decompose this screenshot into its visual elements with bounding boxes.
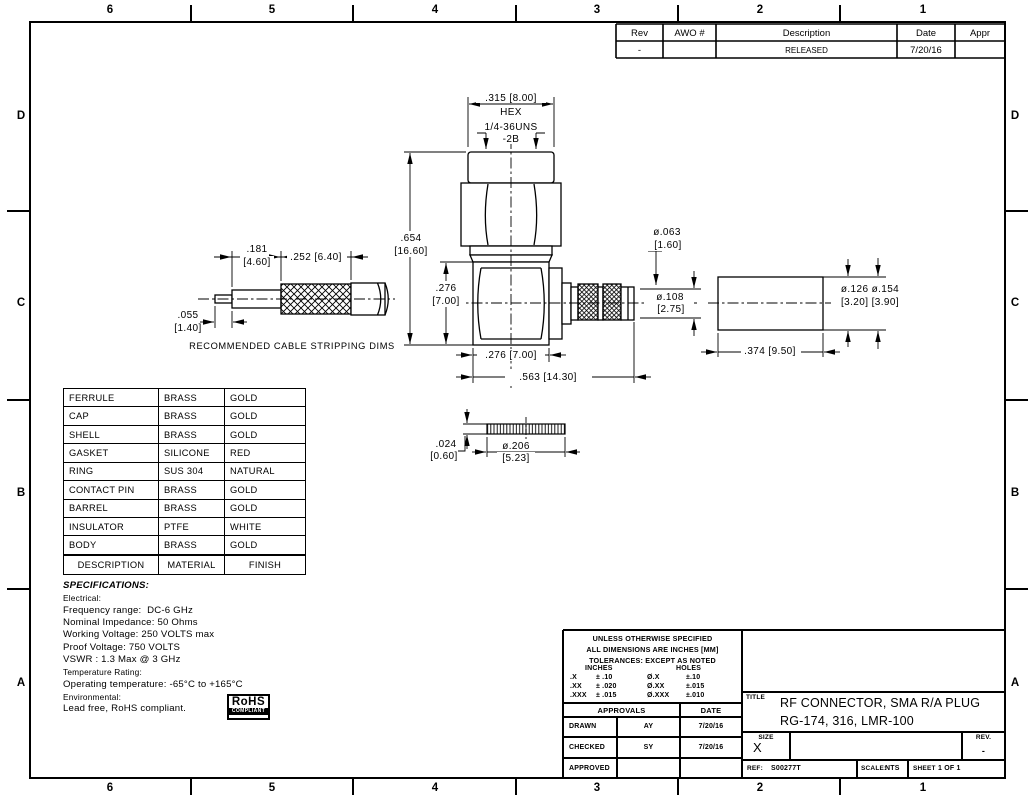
- materials-table-footer: DESCRIPTION MATERIAL FINISH: [64, 555, 306, 574]
- table-row: INSULATOR PTFE WHITE: [64, 517, 306, 535]
- tolerance-line3: TOLERANCES: EXCEPT AS NOTED: [563, 656, 742, 665]
- material-part: CAP: [64, 407, 159, 425]
- material-part: FERRULE: [64, 389, 159, 407]
- dim-barrel-dia: ø.108: [656, 292, 684, 303]
- rev-table-header-awo: AWO #: [663, 26, 716, 41]
- strip-dim2: .252 [6.40]: [290, 252, 342, 263]
- drawing-title-line1: RF CONNECTOR, SMA R/A PLUG: [780, 696, 980, 710]
- zone-row-a-left: A: [13, 677, 29, 689]
- dim-total-width: .563 [14.30]: [519, 372, 577, 383]
- zone-col-1-bottom: 1: [915, 782, 931, 794]
- tol-cell: ± .015: [596, 692, 617, 699]
- tol-cell: .X: [570, 674, 577, 681]
- approvals-header: APPROVALS: [563, 706, 680, 715]
- specs-line: Proof Voltage: 750 VOLTS: [63, 642, 333, 654]
- specs-line: Temperature Rating:: [63, 666, 333, 678]
- rev-table-value-rev: -: [616, 43, 663, 58]
- zone-col-1-top: 1: [915, 4, 931, 16]
- specs-line: Lead free, RoHS compliant.: [63, 703, 333, 715]
- zone-row-b-left: B: [13, 487, 29, 499]
- rev-table-header-date: Date: [897, 26, 955, 41]
- material-material: SUS 304: [159, 462, 225, 480]
- zone-col-6-top: 6: [102, 4, 118, 16]
- size-value: X: [753, 740, 762, 755]
- specs-line: Operating temperature: -65°C to +165°C: [63, 679, 333, 691]
- material-part: BODY: [64, 536, 159, 555]
- strip-dim3-mm: [1.40]: [174, 323, 201, 334]
- material-material: PTFE: [159, 517, 225, 535]
- material-part: CONTACT PIN: [64, 481, 159, 499]
- dim-body-height-mm: [7.00]: [432, 296, 459, 307]
- materials-footer-description: DESCRIPTION: [64, 555, 159, 574]
- zone-col-4-top: 4: [427, 4, 443, 16]
- material-finish: GOLD: [225, 407, 306, 425]
- gasket-thk-mm: [0.60]: [430, 451, 457, 462]
- zone-row-b-right: B: [1007, 487, 1023, 499]
- tol-cell: ±.10: [686, 674, 700, 681]
- material-finish: GOLD: [225, 389, 306, 407]
- materials-footer-finish: FINISH: [225, 555, 306, 574]
- table-row: CONTACT PIN BRASS GOLD: [64, 481, 306, 499]
- material-finish: GOLD: [225, 536, 306, 555]
- zone-col-5-bottom: 5: [264, 782, 280, 794]
- scale-label: SCALE:: [861, 765, 886, 772]
- dim-thread-class: -2B: [503, 134, 520, 145]
- zone-col-2-bottom: 2: [752, 782, 768, 794]
- dim-pin-dia-mm: [1.60]: [654, 240, 681, 251]
- specs-line: Working Voltage: 250 VOLTS max: [63, 629, 333, 641]
- specs-line: Nominal Impedance: 50 Ohms: [63, 617, 333, 629]
- zone-row-c-right: C: [1007, 297, 1023, 309]
- tol-cell: Ø.XX: [647, 683, 665, 690]
- specs-title: SPECIFICATIONS:: [63, 580, 333, 592]
- rohs-compliant-stamp: RoHS COMPLIANT: [227, 694, 270, 720]
- approvals-approved-label: APPROVED: [569, 765, 610, 772]
- gasket-dia-mm: [5.23]: [502, 453, 529, 464]
- approvals-checked-label: CHECKED: [569, 744, 605, 751]
- dim-height-mm: [16.60]: [394, 246, 427, 257]
- ref-value: S00277T: [771, 765, 801, 772]
- drawing-title-line2: RG-174, 316, LMR-100: [780, 714, 914, 728]
- tolerance-line2: ALL DIMENSIONS ARE INCHES [MM]: [563, 645, 742, 654]
- scale-value: NTS: [885, 765, 900, 772]
- rev-table-value-description: RELEASED: [716, 43, 897, 58]
- dim-body-height-in: .276: [435, 283, 456, 294]
- material-finish: WHITE: [225, 517, 306, 535]
- size-label: SIZE: [742, 734, 790, 741]
- rev-table-header-rev: Rev: [616, 26, 663, 41]
- approvals-checked-by: SY: [617, 744, 680, 751]
- material-part: GASKET: [64, 444, 159, 462]
- sheet-value: 1 OF 1: [938, 765, 961, 772]
- tol-cell: ±.015: [686, 683, 704, 690]
- rev-table-header-description: Description: [716, 26, 897, 41]
- specs-line: VSWR : 1.3 Max @ 3 GHz: [63, 654, 333, 666]
- gasket-dia-in: ø.206: [502, 441, 530, 452]
- approvals-drawn-by: AY: [617, 723, 680, 730]
- rev-value: -: [962, 746, 1005, 756]
- material-material: SILICONE: [159, 444, 225, 462]
- zone-col-2-top: 2: [752, 4, 768, 16]
- tol-cell: Ø.X: [647, 674, 660, 681]
- ref-label: REF:: [747, 765, 763, 772]
- gasket-thk-in: .024: [435, 439, 456, 450]
- tol-cell: ±.010: [686, 692, 704, 699]
- strip-caption: RECOMMENDED CABLE STRIPPING DIMS: [189, 341, 395, 351]
- rev-table-header-appr: Appr: [955, 26, 1005, 41]
- material-finish: RED: [225, 444, 306, 462]
- material-part: INSULATOR: [64, 517, 159, 535]
- zone-row-d-left: D: [13, 110, 29, 122]
- zone-col-5-top: 5: [264, 4, 280, 16]
- material-material: BRASS: [159, 481, 225, 499]
- material-material: BRASS: [159, 425, 225, 443]
- table-row: RING SUS 304 NATURAL: [64, 462, 306, 480]
- material-finish: GOLD: [225, 425, 306, 443]
- ferrule-length: .374 [9.50]: [744, 346, 796, 357]
- ferrule-drawing: [718, 277, 823, 330]
- tolerance-inches-header: INCHES: [585, 665, 613, 672]
- material-part: BARREL: [64, 499, 159, 517]
- table-row: FERRULE BRASS GOLD: [64, 389, 306, 407]
- zone-col-3-top: 3: [589, 4, 605, 16]
- strip-dim1-mm: [4.60]: [243, 257, 270, 268]
- tolerance-holes-header: HOLES: [676, 665, 701, 672]
- approvals-drawn-date: 7/20/16: [680, 723, 742, 730]
- drawing-sheet: .315 [8.00] HEX 1/4-36UNS -2B .654 [16.6…: [0, 0, 1030, 800]
- zone-col-4-bottom: 4: [427, 782, 443, 794]
- zone-row-a-right: A: [1007, 677, 1023, 689]
- specs-line: Frequency range: DC-6 GHz: [63, 605, 333, 617]
- rev-table-value-appr: [955, 43, 1005, 58]
- tol-cell: .XXX: [570, 692, 587, 699]
- material-finish: NATURAL: [225, 462, 306, 480]
- material-part: RING: [64, 462, 159, 480]
- dim-thread-callout: 1/4-36UNS: [484, 122, 537, 133]
- zone-row-c-left: C: [13, 297, 29, 309]
- material-finish: GOLD: [225, 499, 306, 517]
- specifications-block: SPECIFICATIONS: Electrical: Frequency ra…: [63, 580, 333, 716]
- dim-hex-width: .315 [8.00]: [485, 93, 537, 104]
- table-row: GASKET SILICONE RED: [64, 444, 306, 462]
- zone-row-d-right: D: [1007, 110, 1023, 122]
- table-row: CAP BRASS GOLD: [64, 407, 306, 425]
- tol-cell: ± .10: [596, 674, 613, 681]
- rohs-compliant-label: COMPLIANT: [229, 708, 268, 715]
- material-material: BRASS: [159, 407, 225, 425]
- rev-table-value-date: 7/20/16: [897, 43, 955, 58]
- material-material: BRASS: [159, 499, 225, 517]
- table-row: SHELL BRASS GOLD: [64, 425, 306, 443]
- tol-cell: ± .020: [596, 683, 617, 690]
- zone-col-3-bottom: 3: [589, 782, 605, 794]
- main-connector-drawing: [461, 152, 634, 345]
- specs-line: Environmental:: [63, 691, 333, 703]
- rev-table-value-awo: [663, 43, 716, 58]
- approvals-date-header: DATE: [680, 706, 742, 715]
- specs-line: Electrical:: [63, 592, 333, 604]
- table-row: BODY BRASS GOLD: [64, 536, 306, 555]
- dim-height-in: .654: [400, 233, 421, 244]
- material-material: BRASS: [159, 389, 225, 407]
- rev-label: REV.: [962, 734, 1005, 741]
- tol-cell: .XX: [570, 683, 582, 690]
- ferrule-dia-mm: [3.20] [3.90]: [841, 297, 899, 308]
- material-part: SHELL: [64, 425, 159, 443]
- approvals-drawn-label: DRAWN: [569, 723, 596, 730]
- title-label: TITLE: [746, 694, 765, 701]
- strip-dim3-in: .055: [177, 310, 198, 321]
- ferrule-dia: ø.126 ø.154: [841, 284, 899, 295]
- material-material: BRASS: [159, 536, 225, 555]
- tol-cell: Ø.XXX: [647, 692, 669, 699]
- materials-table: FERRULE BRASS GOLD CAP BRASS GOLD SHELL …: [63, 388, 306, 575]
- material-finish: GOLD: [225, 481, 306, 499]
- materials-footer-material: MATERIAL: [159, 555, 225, 574]
- zone-col-6-bottom: 6: [102, 782, 118, 794]
- sheet-label: SHEET: [913, 765, 936, 772]
- dim-barrel-dia-mm: [2.75]: [657, 304, 684, 315]
- rohs-name: RoHS: [229, 696, 268, 708]
- dim-pin-dia: ø.063: [653, 227, 681, 238]
- table-row: BARREL BRASS GOLD: [64, 499, 306, 517]
- tolerance-line1: UNLESS OTHERWISE SPECIFIED: [563, 634, 742, 643]
- dim-body-width: .276 [7.00]: [485, 350, 537, 361]
- strip-dim1-in: .181: [246, 244, 267, 255]
- dim-hex-label: HEX: [500, 107, 522, 118]
- approvals-checked-date: 7/20/16: [680, 744, 742, 751]
